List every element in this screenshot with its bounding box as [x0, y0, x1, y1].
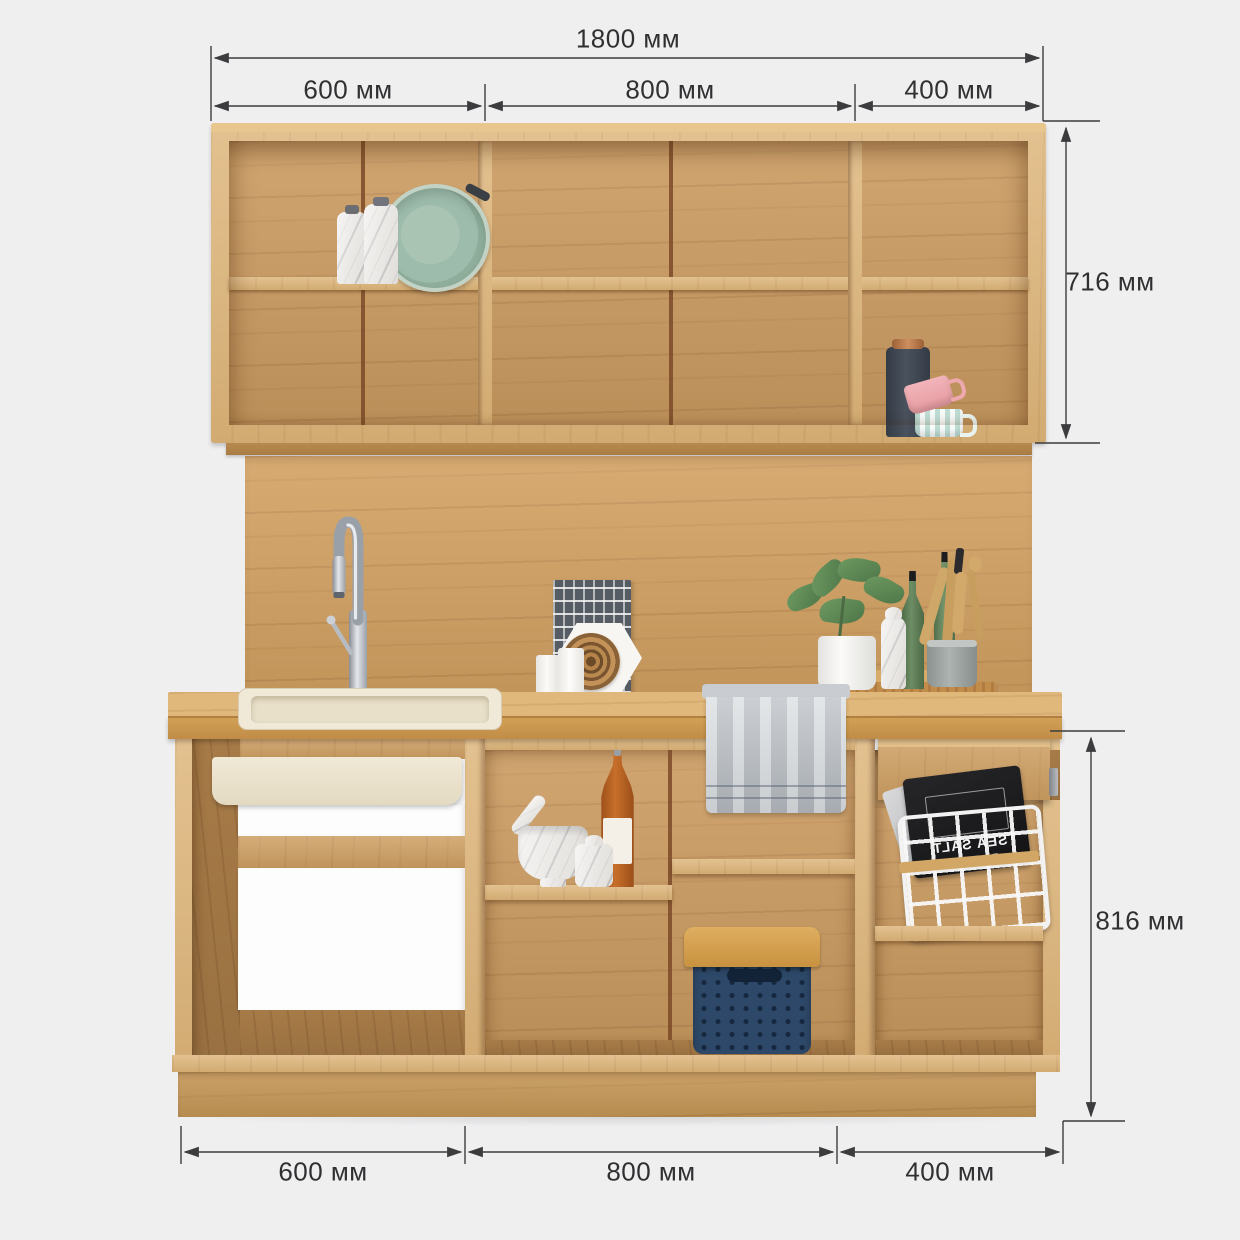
kitchen-render-scene: SEA SALT PEPPER: [0, 0, 1240, 1240]
dim-label-total-width: 1800 мм: [576, 24, 680, 55]
dim-label-bottom-600: 600 мм: [278, 1157, 367, 1188]
dim-label-bottom-800: 800 мм: [606, 1157, 695, 1188]
dim-label-top-600: 600 мм: [303, 75, 392, 106]
dim-label-base-height: 816 мм: [1095, 906, 1184, 937]
dimension-lines: [0, 0, 1240, 1240]
dim-label-top-400: 400 мм: [904, 75, 993, 106]
dim-label-bottom-400: 400 мм: [905, 1157, 994, 1188]
dim-label-upper-height: 716 мм: [1065, 267, 1154, 298]
dim-label-top-800: 800 мм: [625, 75, 714, 106]
